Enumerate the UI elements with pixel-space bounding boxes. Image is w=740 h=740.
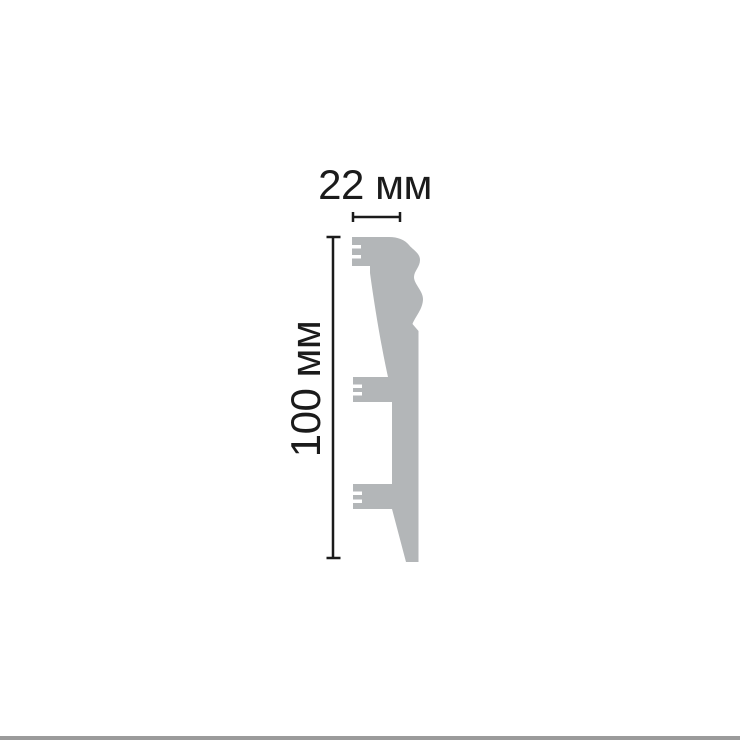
height-dimension-label: 100 мм [282, 321, 330, 458]
profile-drawing [0, 0, 740, 740]
width-dimension-line [353, 212, 400, 222]
diagram-canvas: 22 мм 100 мм [0, 0, 740, 740]
width-dimension-label: 22 мм [318, 161, 432, 209]
plinth-profile-shape [352, 237, 423, 562]
bottom-edge-strip [0, 736, 740, 740]
